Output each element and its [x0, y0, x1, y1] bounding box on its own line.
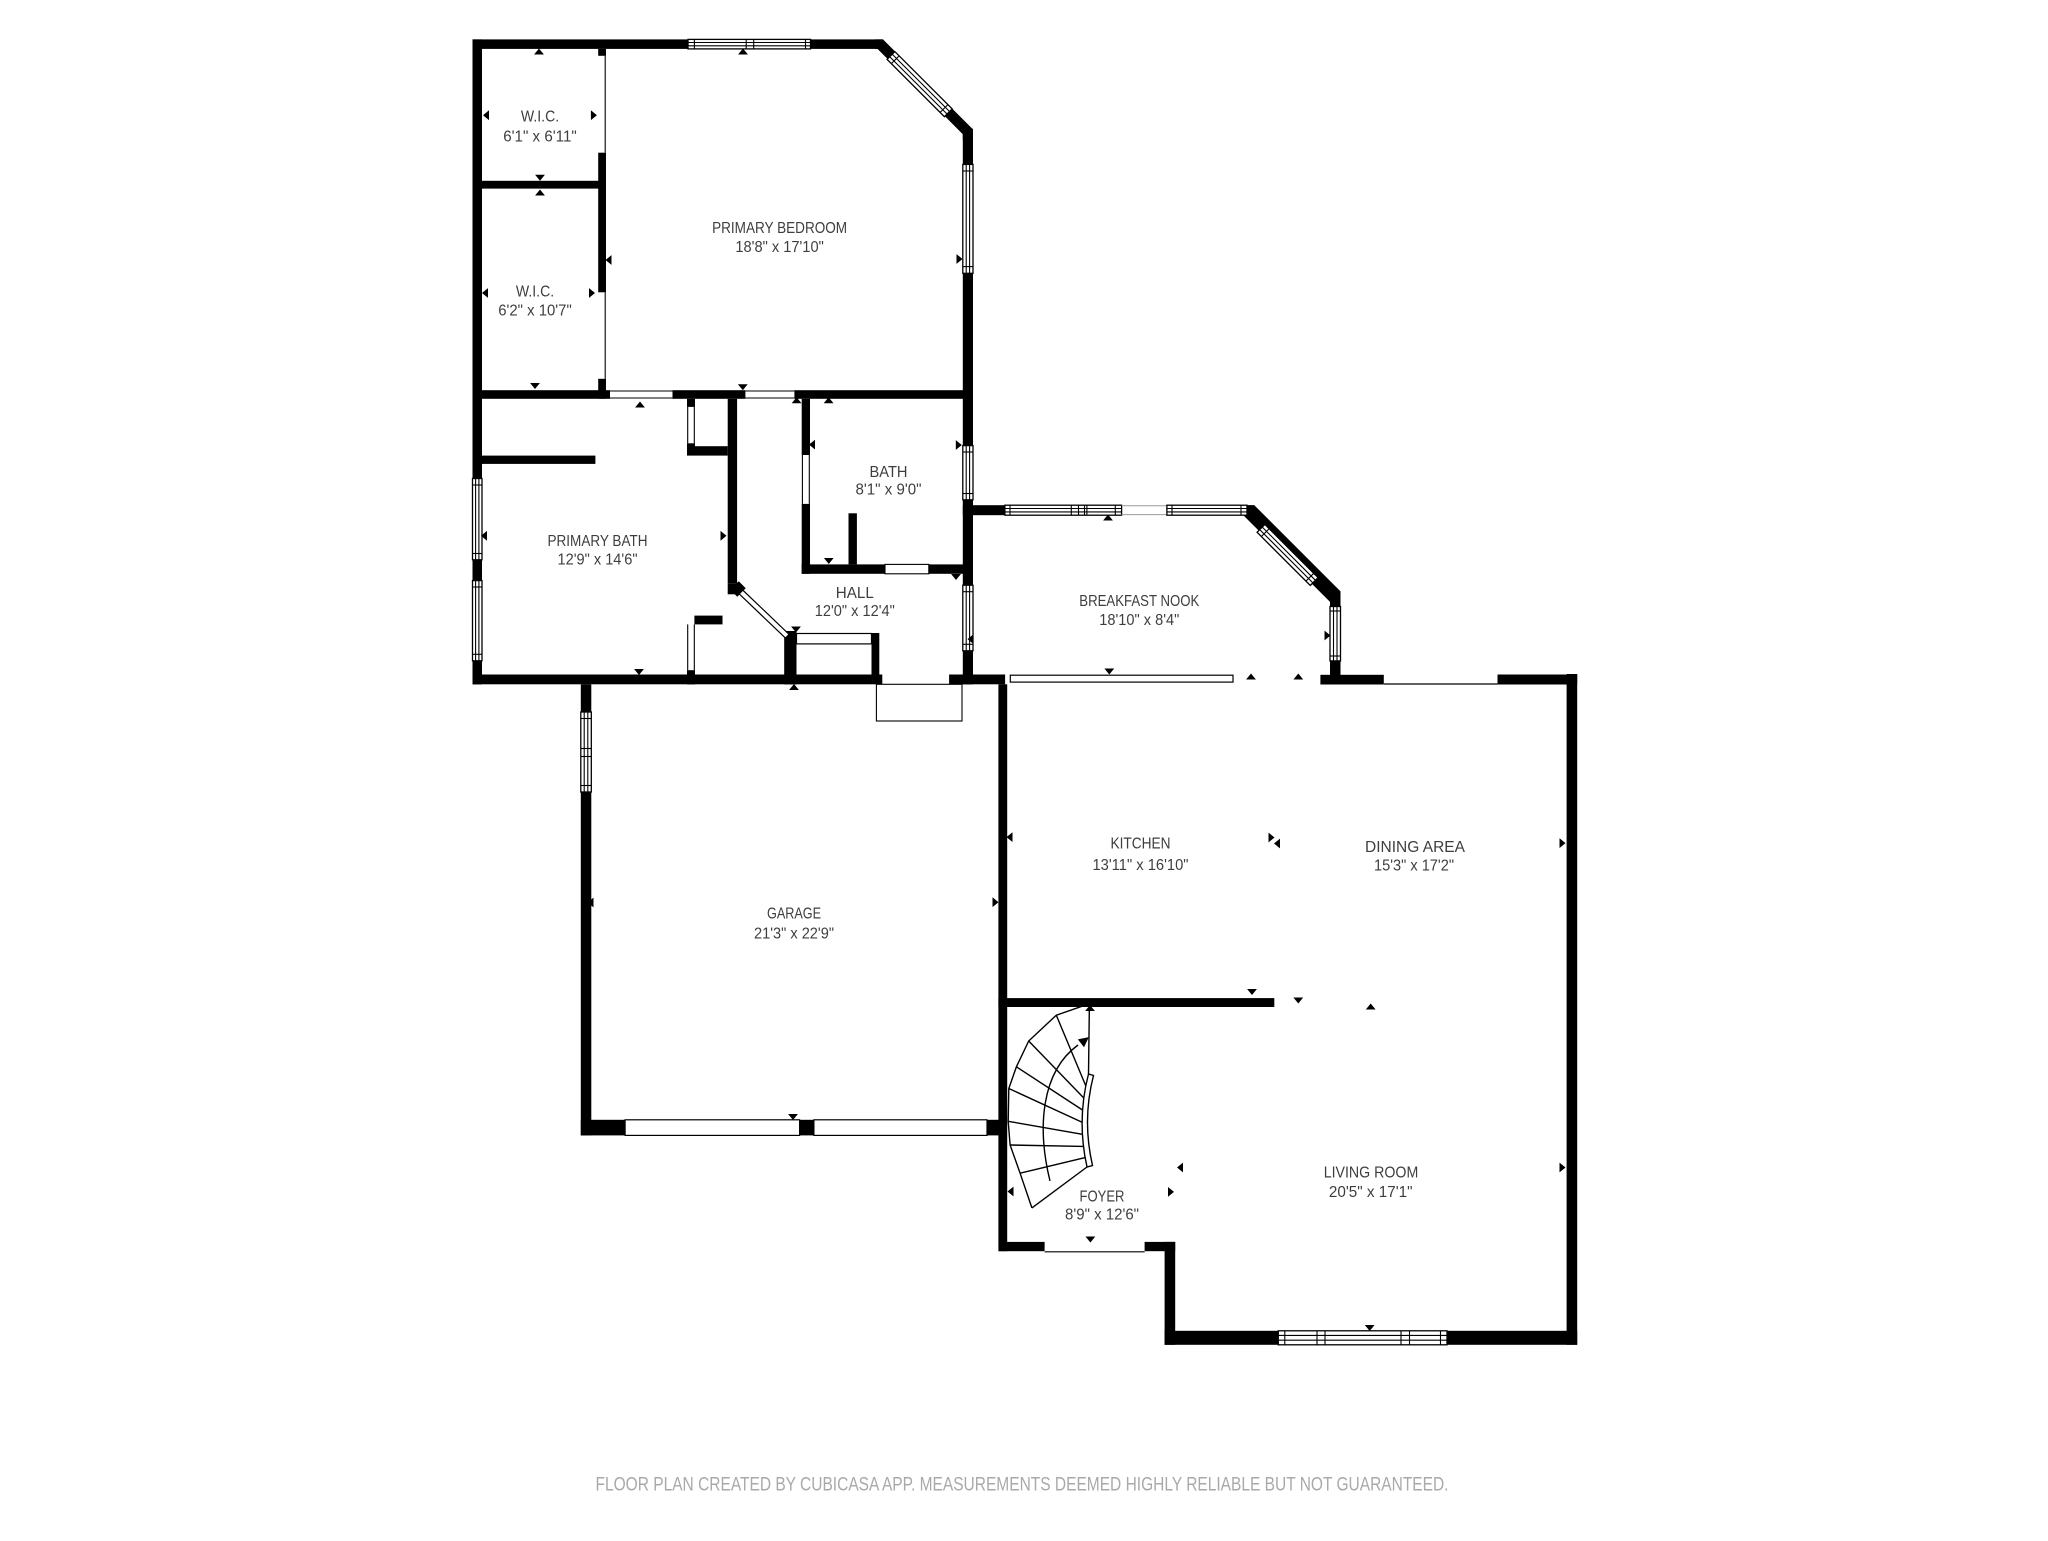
svg-text:FLOOR PLAN CREATED BY CUBICASA: FLOOR PLAN CREATED BY CUBICASA APP. MEAS…: [596, 1474, 1449, 1495]
svg-text:6'2" x 10'7": 6'2" x 10'7": [498, 303, 572, 320]
svg-text:BREAKFAST NOOK: BREAKFAST NOOK: [1079, 593, 1200, 610]
svg-text:HALL: HALL: [836, 585, 874, 602]
svg-text:8'9" x 12'6": 8'9" x 12'6": [1065, 1207, 1139, 1224]
svg-text:KITCHEN: KITCHEN: [1111, 836, 1171, 853]
svg-text:W.I.C.: W.I.C.: [516, 284, 554, 301]
svg-text:18'10" x 8'4": 18'10" x 8'4": [1099, 612, 1179, 629]
svg-text:DINING AREA: DINING AREA: [1365, 839, 1466, 856]
svg-text:FOYER: FOYER: [1080, 1189, 1125, 1206]
svg-text:6'1" x 6'11": 6'1" x 6'11": [503, 129, 577, 146]
svg-text:8'1" x 9'0": 8'1" x 9'0": [856, 482, 922, 499]
svg-text:15'3" x 17'2": 15'3" x 17'2": [1374, 858, 1454, 875]
svg-text:GARAGE: GARAGE: [767, 906, 821, 923]
svg-text:BATH: BATH: [870, 464, 908, 481]
svg-text:W.I.C.: W.I.C.: [521, 109, 559, 126]
svg-text:18'8" x 17'10": 18'8" x 17'10": [735, 239, 823, 256]
svg-text:PRIMARY BEDROOM: PRIMARY BEDROOM: [712, 220, 847, 237]
svg-text:20'5" x 17'1": 20'5" x 17'1": [1329, 1184, 1413, 1201]
svg-text:12'0" x 12'4": 12'0" x 12'4": [815, 603, 895, 620]
svg-text:12'9" x 14'6": 12'9" x 14'6": [558, 551, 638, 568]
svg-text:13'11" x 16'10": 13'11" x 16'10": [1093, 857, 1189, 874]
svg-text:21'3" x 22'9": 21'3" x 22'9": [754, 926, 834, 943]
svg-text:PRIMARY BATH: PRIMARY BATH: [548, 533, 648, 550]
svg-text:LIVING ROOM: LIVING ROOM: [1324, 1165, 1419, 1182]
